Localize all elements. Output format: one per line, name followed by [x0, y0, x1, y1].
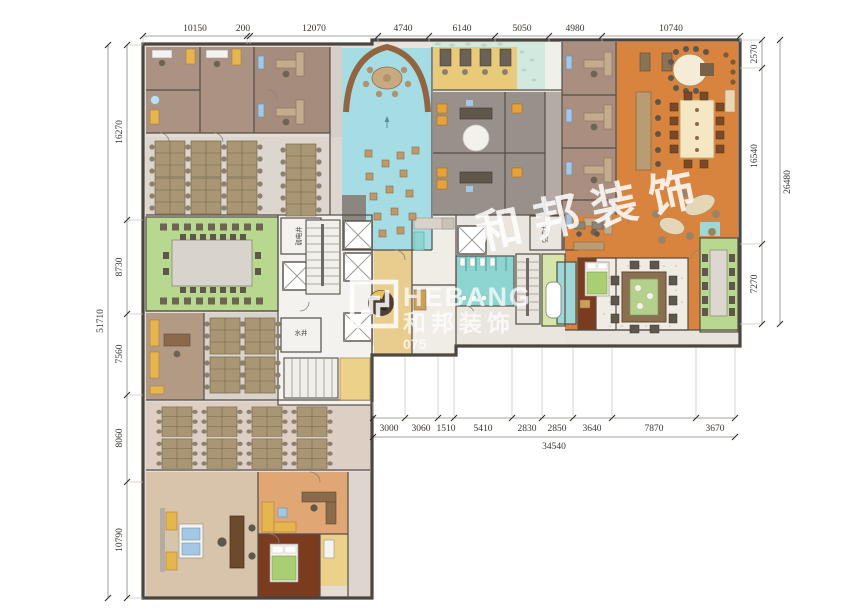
dim-top-4: 4740 — [394, 24, 413, 34]
floor-plan-drawing: 弱电井 水井 强电井 10150 200 12070 4740 6140 505… — [0, 0, 864, 616]
dim-left-4: 8060 — [115, 428, 125, 447]
dim-left-3: 7560 — [115, 344, 125, 363]
dim-left-total: 51710 — [96, 309, 106, 333]
dim-left-5: 10790 — [115, 528, 125, 552]
dim-right-1: 2570 — [750, 44, 760, 63]
dimensions-bottom: 3000 3060 1510 5410 2830 2850 3640 7870 … — [370, 348, 738, 452]
dim-bottom-3: 1510 — [437, 424, 456, 434]
dim-bottom-total: 34540 — [542, 442, 566, 452]
dim-top-7: 4980 — [566, 24, 585, 34]
dim-right-3: 7270 — [750, 274, 760, 293]
dim-bottom-4: 5410 — [474, 424, 493, 434]
brand-name-en: HEBANG — [403, 282, 532, 312]
dim-bottom-9: 3670 — [706, 424, 725, 434]
dim-right-total: 26480 — [783, 170, 793, 194]
water-shaft-label: 水井 — [295, 328, 309, 337]
brand-phone-partial: 075 — [403, 336, 427, 352]
dim-right-2: 16540 — [750, 144, 760, 168]
dim-top-1: 10150 — [183, 24, 207, 34]
dim-bottom-7: 3640 — [583, 424, 602, 434]
dim-bottom-2: 3060 — [412, 424, 431, 434]
brand-name-cn: 和邦装饰 — [403, 310, 515, 336]
dim-top-5: 6140 — [453, 24, 472, 34]
dimensions-right: 2570 16540 7270 26480 — [740, 37, 793, 327]
dim-bottom-1: 3000 — [380, 424, 399, 434]
dim-left-2: 8730 — [115, 257, 125, 276]
dimensions-left: 16270 8730 7560 8060 10790 51710 — [96, 42, 143, 601]
dim-top-8: 10740 — [659, 24, 683, 34]
dim-top-2: 200 — [236, 24, 251, 34]
dim-bottom-5: 2830 — [518, 424, 537, 434]
dim-left-1: 16270 — [115, 120, 125, 144]
floor-plan-page: 弱电井 水井 强电井 10150 200 12070 4740 6140 505… — [0, 0, 864, 616]
dim-top-3: 12070 — [302, 24, 326, 34]
dim-bottom-6: 2850 — [548, 424, 567, 434]
dim-bottom-8: 7870 — [645, 424, 664, 434]
weak-current-shaft-label: 弱电井 — [294, 226, 303, 246]
dim-top-6: 5050 — [513, 24, 532, 34]
